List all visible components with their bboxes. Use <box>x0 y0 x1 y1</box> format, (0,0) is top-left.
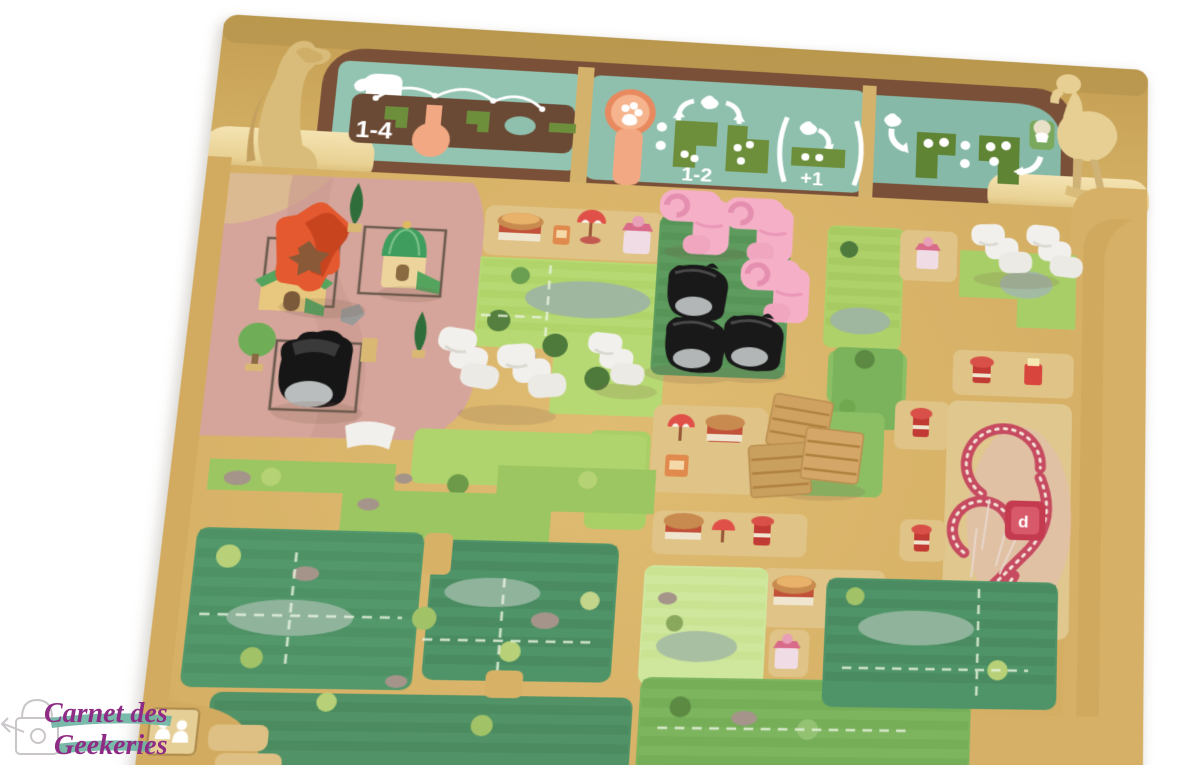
svg-text:1-4: 1-4 <box>354 117 394 144</box>
svg-text:1-2: 1-2 <box>681 163 713 187</box>
svg-text:Carnet des: Carnet des <box>44 698 168 729</box>
svg-text:+1: +1 <box>800 169 824 190</box>
svg-text:d: d <box>1018 512 1029 532</box>
svg-text:Geekeries: Geekeries <box>54 730 168 761</box>
